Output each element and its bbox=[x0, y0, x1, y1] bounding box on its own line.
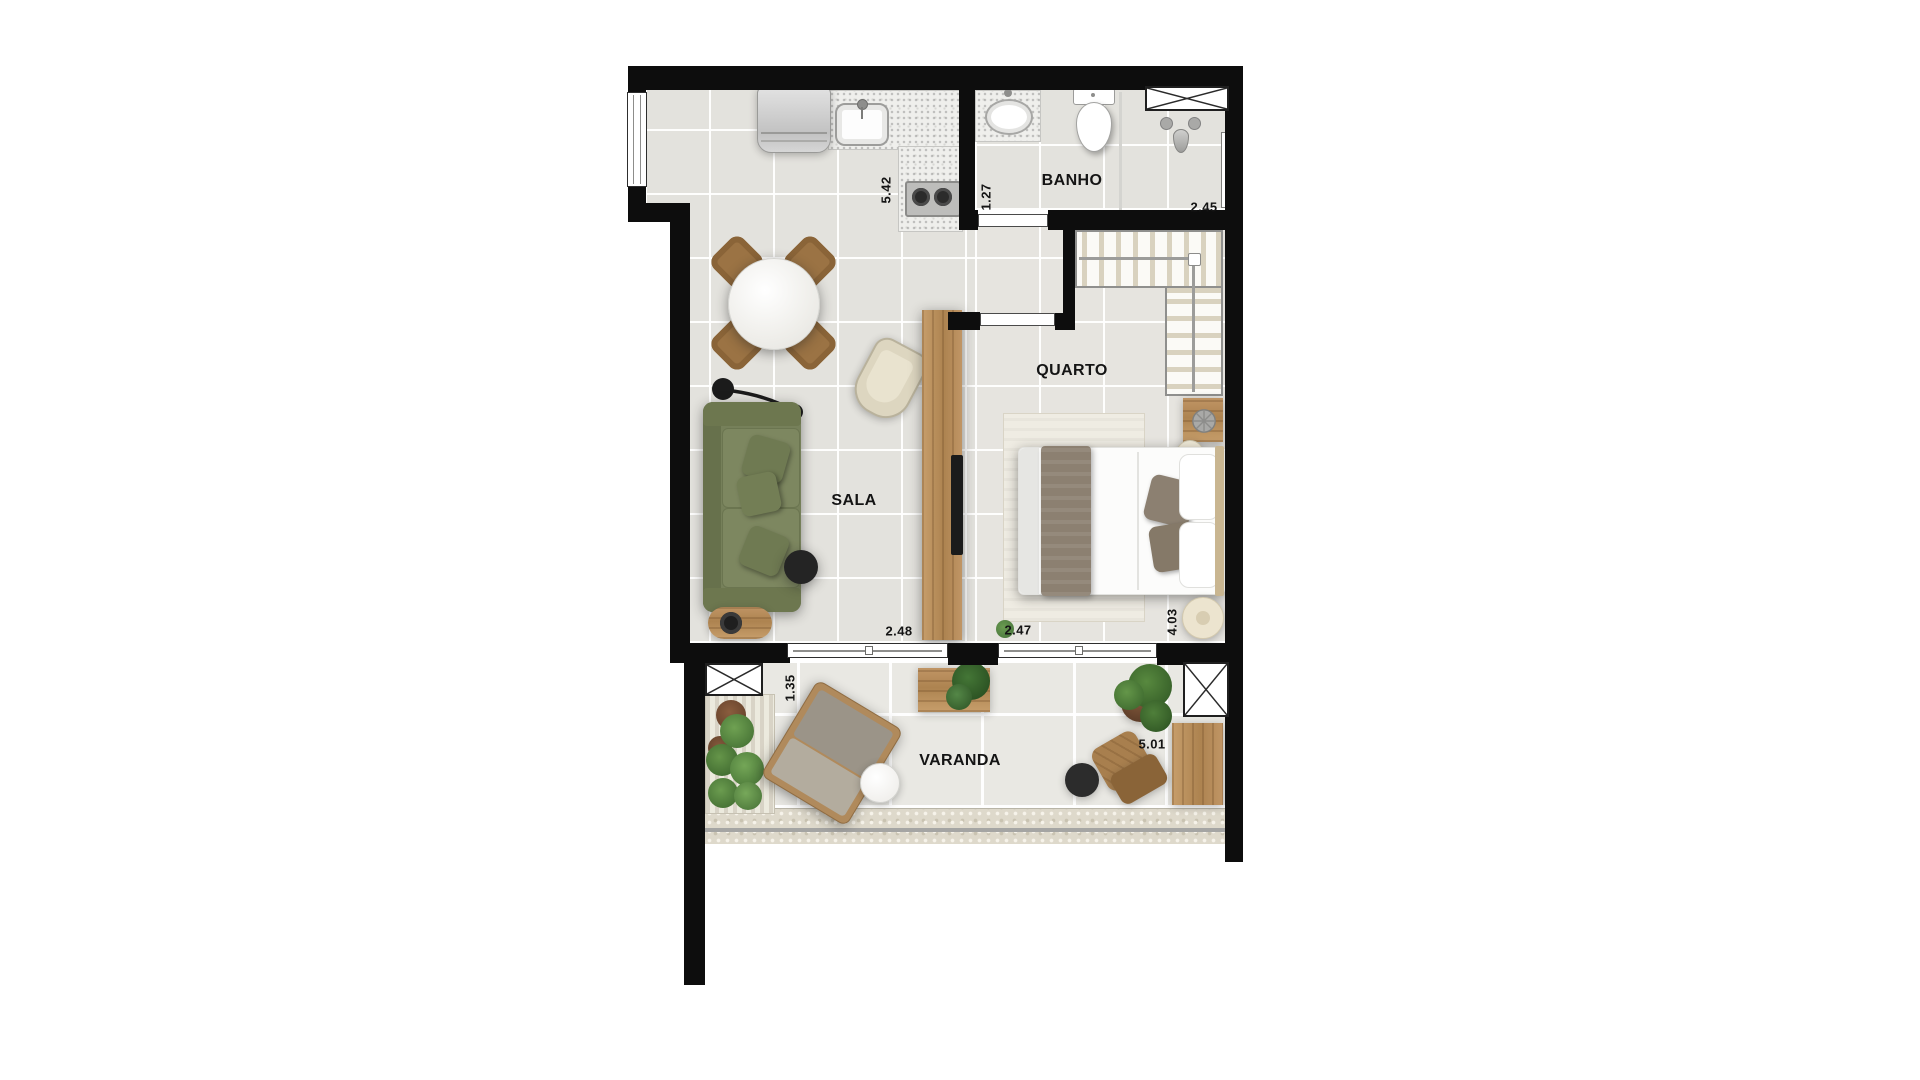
balcony-plant bbox=[1140, 700, 1172, 732]
shower-handle-left bbox=[1160, 117, 1173, 130]
sliding-door-sala bbox=[787, 643, 948, 658]
bedroom-pouf-center bbox=[1196, 611, 1210, 625]
dimension-bath-width: 1.27 bbox=[979, 184, 994, 211]
sliding-door-handle bbox=[1075, 646, 1083, 655]
accent-chair-seat bbox=[860, 348, 915, 409]
sofa-side-table bbox=[708, 607, 772, 639]
bed bbox=[1018, 447, 1225, 595]
table-lamp-icon bbox=[720, 612, 742, 634]
dimension-varanda-width: 1.35 bbox=[783, 675, 798, 702]
dimension-varanda-length: 5.01 bbox=[1139, 737, 1166, 752]
balcony-marble-table bbox=[860, 763, 900, 803]
bed-headboard bbox=[1215, 446, 1224, 596]
sofa-arm-top bbox=[703, 402, 801, 426]
fridge-door-line bbox=[761, 132, 827, 134]
toilet bbox=[1073, 88, 1113, 154]
stove-burner-left bbox=[912, 188, 930, 206]
balcony-table bbox=[1172, 723, 1223, 805]
shaft-balcony-left bbox=[705, 663, 763, 696]
sliding-door-quarto bbox=[998, 643, 1157, 658]
room-label-quarto: QUARTO bbox=[1036, 362, 1107, 380]
sofa-pillow bbox=[735, 470, 782, 517]
bed-foot-fold bbox=[1019, 448, 1039, 594]
door-bathroom bbox=[978, 214, 1048, 227]
planter-plant bbox=[720, 714, 754, 748]
dining-table bbox=[728, 258, 820, 350]
bed-duvet-line bbox=[1137, 452, 1139, 590]
wall-right bbox=[1225, 66, 1243, 862]
window-kitchen-frame-line bbox=[640, 95, 641, 184]
balcony-border-strip bbox=[705, 808, 1225, 844]
fridge-door-line2 bbox=[761, 140, 827, 142]
shower-handle-right bbox=[1188, 117, 1201, 130]
side-pouf bbox=[784, 550, 818, 584]
planter-plant bbox=[734, 782, 762, 810]
bath-vanity bbox=[975, 90, 1041, 142]
bench-plant bbox=[946, 684, 972, 710]
fan-lamp-icon bbox=[1190, 407, 1218, 435]
door-bedroom bbox=[980, 313, 1055, 326]
dimension-quarto-length: 4.03 bbox=[1165, 609, 1180, 636]
toilet-bowl bbox=[1076, 102, 1112, 152]
wall-door-pier bbox=[948, 643, 998, 665]
bed-pillow-white bbox=[1179, 454, 1219, 520]
floorplan-canvas: BANHO QUARTO SALA VARANDA 5.42 1.27 2.45… bbox=[0, 0, 1920, 1080]
wall-kitchen-bath bbox=[959, 90, 975, 230]
wall-fin-left bbox=[684, 643, 705, 985]
wall-sala-left bbox=[670, 203, 690, 663]
wall-bedroom-door-jamb-right bbox=[1055, 313, 1075, 330]
wardrobe-rod-vertical bbox=[1192, 258, 1195, 392]
shaft-bathroom bbox=[1145, 86, 1229, 111]
shaft-balcony-right bbox=[1183, 662, 1229, 717]
shower-divider-line bbox=[1119, 92, 1122, 210]
dimension-sala-width: 2.48 bbox=[886, 624, 913, 639]
window-kitchen bbox=[627, 92, 647, 187]
room-label-varanda: VARANDA bbox=[919, 752, 1001, 770]
shower-fixture-icon bbox=[1158, 115, 1204, 155]
wall-balcony-topleft bbox=[684, 643, 790, 663]
balcony-pouf bbox=[1065, 763, 1099, 797]
dimension-quarto-width: 2.47 bbox=[1005, 623, 1032, 638]
kitchen-sink bbox=[835, 103, 889, 146]
stove bbox=[905, 181, 961, 217]
bed-pillow-white bbox=[1179, 522, 1219, 588]
toilet-button bbox=[1091, 93, 1095, 97]
planter-plant bbox=[730, 752, 764, 786]
window-kitchen-frame-line bbox=[633, 95, 634, 184]
bed-runner-blanket bbox=[1041, 446, 1091, 596]
room-label-sala: SALA bbox=[831, 492, 876, 510]
tv bbox=[951, 455, 963, 555]
balcony-plant bbox=[1114, 680, 1144, 710]
bath-sink bbox=[985, 99, 1033, 135]
sofa-back bbox=[703, 402, 721, 612]
shower-spout bbox=[1173, 129, 1189, 153]
wardrobe-rod-horizontal bbox=[1079, 257, 1194, 260]
wall-left-upper bbox=[628, 66, 646, 92]
dimension-kitchen-length: 5.42 bbox=[879, 177, 894, 204]
wardrobe-rod-knob bbox=[1188, 253, 1201, 266]
sofa bbox=[703, 402, 801, 612]
fridge bbox=[757, 87, 831, 153]
balcony-railing-line bbox=[705, 828, 1225, 832]
bedroom-pouf bbox=[1182, 597, 1224, 639]
stove-burner-right bbox=[934, 188, 952, 206]
kitchen-faucet-stem bbox=[861, 107, 863, 119]
sliding-door-handle bbox=[865, 646, 873, 655]
wall-bath-bottom-left bbox=[959, 210, 978, 230]
wall-bedroom-door-jamb-left bbox=[948, 312, 980, 330]
room-label-banho: BANHO bbox=[1042, 172, 1103, 190]
dimension-bath-length: 2.45 bbox=[1191, 200, 1218, 215]
bath-faucet-icon bbox=[1004, 89, 1012, 97]
